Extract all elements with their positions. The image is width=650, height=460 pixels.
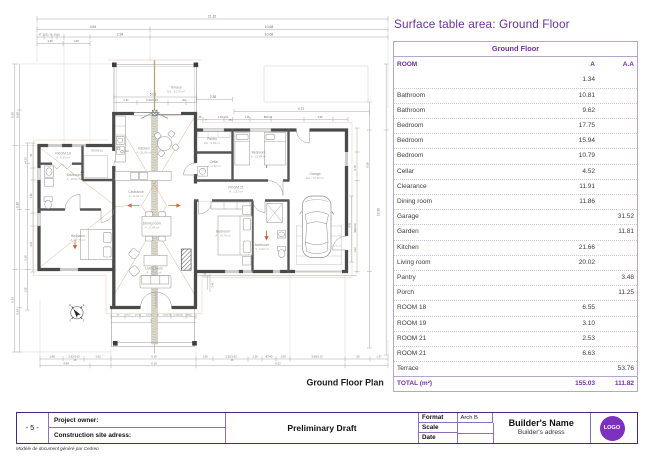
svg-text:5.26: 5.26 — [11, 297, 15, 303]
svg-text:3.56/2.13: 3.56/2.13 — [311, 354, 323, 358]
svg-text:4.72: 4.72 — [298, 107, 305, 111]
svg-text:.47 .2'0.61 .91 .2'0.61: .47 .2'0.61 .91 .2'0.61 — [38, 35, 61, 37]
svg-text:9.10: 9.10 — [15, 202, 19, 208]
svg-text:2.38: 2.38 — [210, 95, 217, 99]
svg-text:1.52/1.63: 1.52/1.63 — [68, 354, 80, 358]
svg-text:5.24: 5.24 — [15, 309, 19, 315]
svg-text:88/2.06: 88/2.06 — [264, 116, 273, 119]
svg-text:1.38: 1.38 — [73, 39, 79, 43]
svg-text:9.58: 9.58 — [365, 162, 369, 168]
svg-text:A : 20.02 m²: A : 20.02 m² — [146, 271, 161, 275]
svg-text:4.20: 4.20 — [23, 157, 27, 163]
svg-text:26: 26 — [231, 359, 234, 362]
svg-text:19.30: 19.30 — [377, 208, 381, 216]
svg-text:A : 21.66 m²: A : 21.66 m² — [136, 151, 151, 155]
svg-text:6.19: 6.19 — [151, 354, 157, 358]
svg-text:ROOM 19: ROOM 19 — [91, 149, 103, 153]
svg-text:21.32: 21.32 — [208, 15, 217, 19]
svg-text:Ext : 53.76 m²: Ext : 53.76 m² — [167, 90, 184, 94]
svg-text:1.46: 1.46 — [245, 116, 250, 119]
svg-text:90: 90 — [182, 98, 186, 102]
svg-text:Ext : 31.52 m²: Ext : 31.52 m² — [306, 176, 323, 180]
svg-text:3.98: 3.98 — [318, 116, 323, 119]
svg-text:A : 10.81 m²: A : 10.81 m² — [66, 177, 81, 181]
svg-text:2.01: 2.01 — [30, 241, 33, 246]
svg-text:Ext : 3.48 m²: Ext : 3.48 m² — [204, 141, 220, 145]
svg-text:1.52: 1.52 — [353, 247, 357, 253]
svg-text:1.38: 1.38 — [47, 39, 53, 43]
svg-text:3.20/2.20: 3.20/2.20 — [146, 98, 158, 102]
svg-text:1.50/2.95: 1.50/2.95 — [162, 314, 172, 316]
svg-text:E: E — [83, 304, 85, 307]
svg-text:5.76: 5.76 — [353, 165, 357, 171]
svg-text:3.26: 3.26 — [23, 255, 27, 261]
svg-text:Ground Floor Plan: Ground Floor Plan — [307, 378, 384, 388]
svg-text:6.19: 6.19 — [151, 362, 157, 366]
svg-text:A : 6.55 m²: A : 6.55 m² — [56, 156, 70, 160]
svg-text:87/40: 87/40 — [266, 354, 273, 358]
svg-text:A : 4.52 m²: A : 4.52 m² — [207, 164, 221, 168]
svg-text:S: S — [83, 320, 85, 323]
svg-text:2'0.7: 2'0.7 — [126, 314, 131, 316]
svg-text:A : 2.53 m²: A : 2.53 m² — [229, 190, 243, 194]
svg-text:1.52: 1.52 — [95, 354, 101, 358]
svg-text:5.08: 5.08 — [150, 93, 157, 97]
svg-text:2.34: 2.34 — [117, 33, 124, 37]
svg-text:55: 55 — [357, 354, 360, 358]
svg-text:95/50: 95/50 — [186, 314, 192, 316]
svg-text:2.20/2.95: 2.20/2.95 — [173, 314, 183, 316]
svg-text:A : 17.75 m²: A : 17.75 m² — [70, 238, 85, 242]
svg-text:36: 36 — [199, 116, 202, 119]
svg-text:1.98: 1.98 — [49, 354, 55, 358]
svg-text:A : 11.86 m²: A : 11.86 m² — [145, 226, 160, 230]
svg-text:1.31: 1.31 — [123, 98, 129, 102]
svg-text:N: N — [69, 304, 71, 307]
svg-text:61: 61 — [30, 153, 33, 156]
svg-text:4.84: 4.84 — [63, 362, 69, 366]
svg-text:1.50: 1.50 — [202, 354, 208, 358]
svg-text:98/2.03: 98/2.03 — [353, 223, 357, 232]
svg-text:1.05: 1.05 — [280, 354, 286, 358]
svg-text:9.50: 9.50 — [15, 112, 19, 118]
svg-text:2.40: 2.40 — [212, 282, 215, 287]
svg-text:1.26: 1.26 — [24, 287, 27, 292]
svg-text:A : 15.94 m²: A : 15.94 m² — [251, 155, 266, 159]
svg-text:2'0.50: 2'0.50 — [135, 314, 142, 316]
svg-text:1.48: 1.48 — [30, 193, 33, 198]
svg-text:O: O — [69, 320, 71, 323]
svg-text:1.16: 1.16 — [252, 354, 258, 358]
svg-text:A : 10.79 m²: A : 10.79 m² — [215, 234, 230, 238]
svg-text:26: 26 — [74, 359, 77, 362]
svg-text:1.52/1.03: 1.52/1.03 — [218, 116, 229, 119]
svg-text:5.50: 5.50 — [11, 112, 15, 118]
svg-text:A : 9.62 m²: A : 9.62 m² — [255, 247, 269, 251]
svg-text:1.52/1.63: 1.52/1.63 — [225, 354, 237, 358]
svg-text:4.91: 4.91 — [348, 222, 351, 227]
svg-text:9.22: 9.22 — [275, 362, 281, 366]
svg-text:10.68: 10.68 — [265, 33, 274, 37]
svg-text:1.27: 1.27 — [376, 354, 382, 358]
svg-text:10.68: 10.68 — [265, 25, 274, 29]
svg-text:A : 11.91 m²: A : 11.91 m² — [129, 194, 144, 198]
svg-text:4.84: 4.84 — [90, 25, 97, 29]
svg-text:40: 40 — [117, 314, 120, 316]
